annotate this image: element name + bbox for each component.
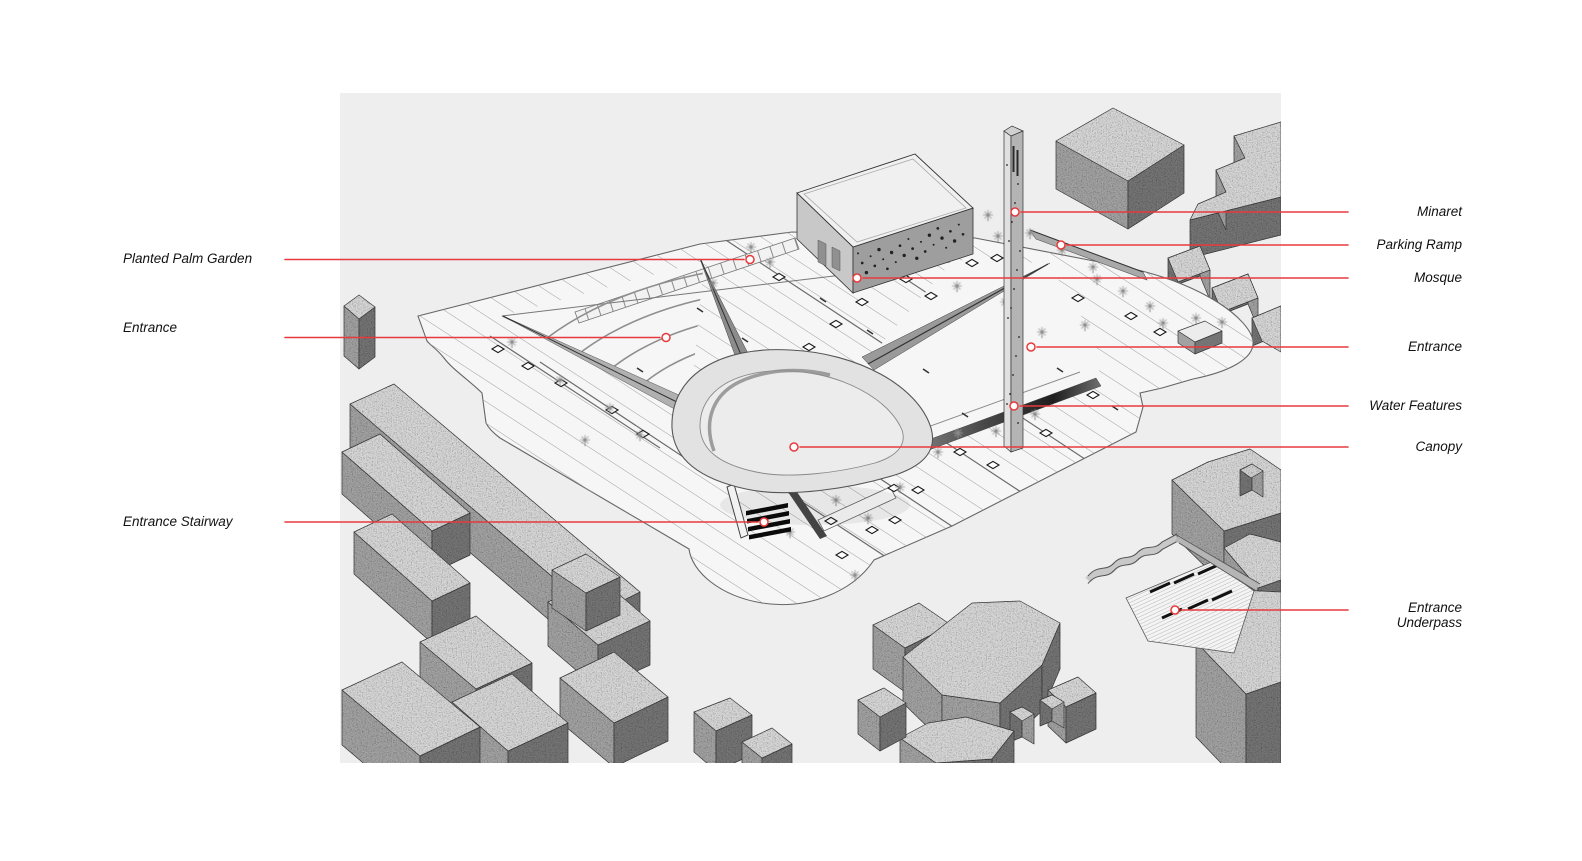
perforation-dot [1006, 164, 1008, 166]
perforation-dot [1006, 403, 1008, 405]
context-building-face [1246, 682, 1281, 789]
facade-dot [882, 258, 884, 260]
facade-dot [886, 267, 889, 270]
facade-dot [877, 248, 880, 251]
perforation-dot [1012, 374, 1014, 376]
facade-dot [920, 241, 922, 243]
facade-dot [890, 251, 893, 254]
mosque-door [818, 240, 826, 266]
perforation-dot [1016, 269, 1018, 271]
perforation-dot [1018, 336, 1020, 338]
facade-dot [924, 250, 927, 253]
facade-dot [933, 244, 935, 246]
callout-label-entrance-stairway: Entrance Stairway [123, 514, 233, 530]
facade-dot [928, 234, 931, 237]
facade-dot [870, 255, 872, 257]
facade-dot [899, 244, 902, 247]
callout-label-mosque: Mosque [1414, 270, 1462, 286]
callout-label-minaret: Minaret [1417, 204, 1462, 220]
facade-dot [911, 247, 914, 250]
facade-dot [873, 265, 876, 268]
perforation-dot [1008, 240, 1010, 242]
facade-dot [936, 227, 939, 230]
facade-dot [903, 254, 906, 257]
facade-dot [962, 233, 965, 236]
facade-dot [945, 247, 947, 249]
perforation-dot [1010, 307, 1012, 309]
marker-parking-ramp [1057, 241, 1065, 249]
site-axonometric-drawing [0, 0, 1582, 861]
perforation-dot [1015, 355, 1017, 357]
minaret-slit-window [1017, 150, 1019, 176]
callout-label-entrance-west: Entrance [123, 320, 177, 336]
facade-dot [949, 230, 952, 233]
perforation-dot [1019, 250, 1021, 252]
callout-label-canopy: Canopy [1415, 439, 1462, 455]
perforation-dot [1011, 221, 1013, 223]
marker-entrance-west [662, 334, 670, 342]
marker-entrance-underpass [1171, 606, 1179, 614]
marker-entrance-east [1027, 343, 1035, 351]
perforation-dot [1013, 288, 1015, 290]
perforation-dot [1017, 183, 1019, 185]
marker-planted-palm-garden [746, 256, 754, 264]
marker-entrance-stairway [760, 518, 768, 526]
callout-label-water-features: Water Features [1369, 398, 1462, 414]
callout-label-parking-ramp: Parking Ramp [1376, 237, 1462, 253]
callout-label-planted-palm-garden: Planted Palm Garden [123, 251, 252, 267]
facade-dot [857, 252, 859, 254]
marker-canopy [790, 443, 798, 451]
callout-label-entrance-underpass: Entrance Underpass [1382, 600, 1462, 630]
facade-dot [907, 238, 909, 240]
perforation-dot [1009, 393, 1011, 395]
facade-dot [953, 239, 956, 242]
facade-dot [940, 236, 943, 239]
facade-dot [958, 224, 960, 226]
marker-mosque [853, 274, 861, 282]
marker-water-features [1010, 402, 1018, 410]
marker-minaret [1011, 208, 1019, 216]
facade-dot [865, 271, 868, 274]
mosque-door [832, 247, 840, 271]
minaret-slit-window [1013, 146, 1015, 172]
facade-dot [861, 262, 864, 265]
perforation-dot [1014, 202, 1016, 204]
perforation-dot [1007, 317, 1009, 319]
facade-dot [895, 261, 897, 263]
perforation-dot [1017, 422, 1019, 424]
context-building-face [936, 759, 992, 805]
facade-dot [915, 257, 918, 260]
callout-label-entrance-east: Entrance [1408, 339, 1462, 355]
architectural-diagram-page: Planted Palm Garden Entrance Entrance St… [0, 0, 1582, 861]
